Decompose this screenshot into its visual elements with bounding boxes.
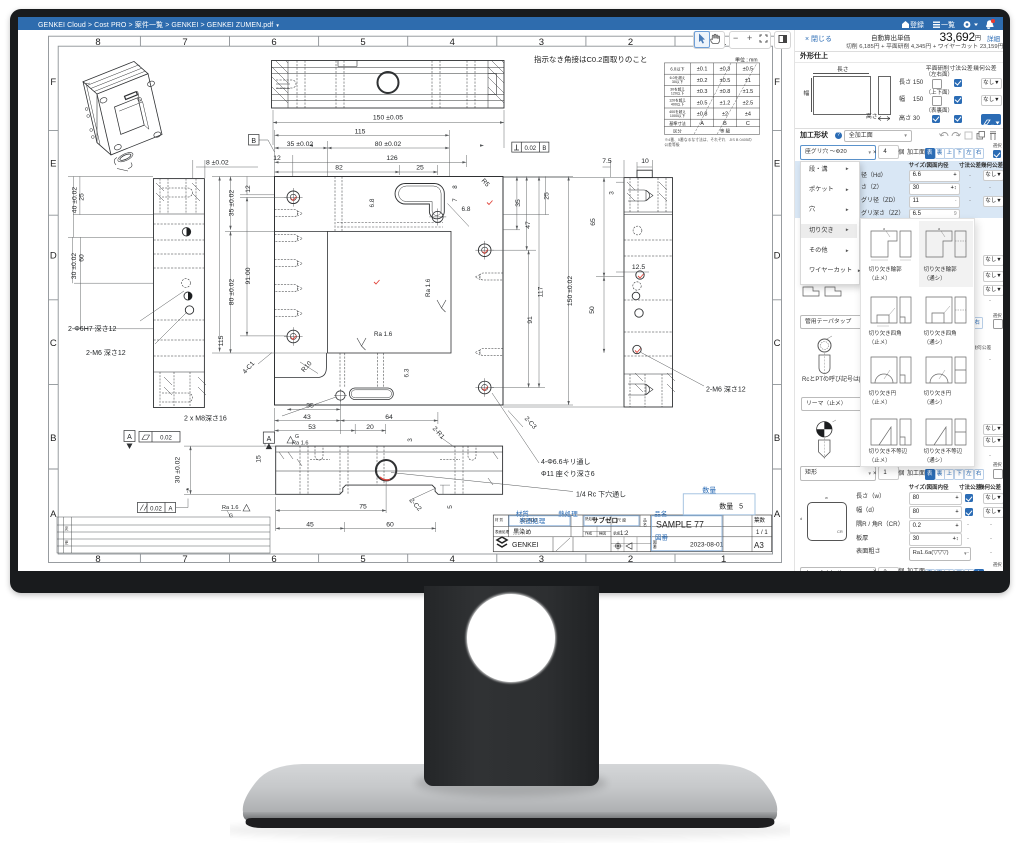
svg-text:75: 75: [359, 504, 367, 511]
svg-text:65: 65: [590, 218, 597, 226]
svg-text:熱処理: 熱処理: [558, 509, 578, 518]
svg-text:2-M6 深さ12: 2-M6 深さ12: [86, 348, 126, 357]
svg-text:150 ±0.02: 150 ±0.02: [567, 276, 574, 306]
svg-text:D: D: [774, 251, 781, 262]
svg-text:53: 53: [308, 424, 316, 431]
svg-text:150 ±0.05: 150 ±0.05: [373, 115, 403, 122]
svg-text:80 ±0.02: 80 ±0.02: [229, 279, 236, 306]
svg-text:±0.5: ±0.5: [697, 101, 708, 107]
svg-text:25: 25: [79, 193, 86, 201]
svg-text:115: 115: [355, 129, 366, 136]
svg-text:3: 3: [407, 438, 414, 442]
svg-text:400以下: 400以下: [671, 103, 685, 107]
svg-text:35 ±0.02: 35 ±0.02: [287, 141, 314, 148]
svg-text:35 ±0.02: 35 ±0.02: [229, 190, 236, 217]
svg-text:8: 8: [95, 37, 100, 48]
svg-text:±4: ±4: [745, 112, 751, 118]
svg-text:12: 12: [273, 155, 281, 162]
svg-text:±0.5: ±0.5: [743, 67, 754, 73]
svg-text:7.5: 7.5: [602, 158, 612, 165]
svg-text:尺 度: 尺 度: [617, 517, 626, 523]
svg-text:7: 7: [182, 554, 187, 565]
svg-text:80 ±0.02: 80 ±0.02: [375, 141, 402, 148]
svg-text:12: 12: [245, 185, 252, 193]
svg-text:A: A: [700, 121, 704, 127]
svg-text:0.02: 0.02: [524, 146, 536, 152]
svg-text:6: 6: [271, 37, 276, 48]
svg-text:25: 25: [416, 165, 424, 172]
svg-text:E: E: [50, 159, 56, 170]
svg-text:120以下: 120以下: [671, 92, 685, 96]
svg-text:25: 25: [544, 192, 551, 200]
svg-text:35: 35: [515, 199, 522, 207]
svg-text:区分: 区分: [673, 128, 682, 135]
svg-text:E: E: [774, 159, 780, 170]
svg-text:B: B: [251, 138, 256, 145]
svg-text:名: 名: [643, 522, 647, 527]
svg-text:8: 8: [95, 554, 100, 565]
svg-text:品: 品: [643, 518, 647, 523]
svg-text:F: F: [774, 77, 780, 88]
svg-text:30 ±0.02: 30 ±0.02: [71, 253, 78, 280]
svg-text:数量: 数量: [702, 486, 716, 495]
svg-text:6.8: 6.8: [462, 206, 471, 213]
svg-text:a: a: [883, 227, 885, 231]
svg-text:※4番、5番なるな寸法は、それぞれ JIS B 0405の: ※4番、5番なるな寸法は、それぞれ JIS B 0405の: [664, 137, 752, 142]
svg-text:4: 4: [450, 554, 455, 565]
svg-text:黒染め: 黒染め: [513, 528, 532, 536]
svg-text:材 質: 材 質: [495, 517, 503, 522]
svg-text:B: B: [774, 433, 780, 444]
svg-text:±0.1: ±0.1: [697, 67, 708, 73]
svg-text:±0.2: ±0.2: [697, 78, 708, 84]
svg-text:±2: ±2: [722, 112, 728, 118]
svg-text:91.00: 91.00: [245, 267, 252, 284]
svg-text:5: 5: [360, 554, 365, 565]
svg-text:1: 1: [721, 554, 726, 565]
svg-text:Ra 1.6: Ra 1.6: [292, 441, 308, 447]
svg-text:数量 5: 数量 5: [719, 502, 743, 511]
svg-text:12.5: 12.5: [632, 264, 645, 271]
svg-text:単位 : mm: 単位 : mm: [735, 57, 758, 64]
svg-text:検図: 検図: [599, 531, 607, 536]
svg-text:7: 7: [182, 37, 187, 48]
svg-text:126: 126: [386, 155, 398, 162]
svg-text:表面処理: 表面処理: [519, 516, 546, 525]
svg-text:7: 7: [452, 198, 459, 202]
svg-text:A3: A3: [754, 541, 764, 550]
svg-text:GENKEI: GENKEI: [512, 542, 539, 549]
svg-text:43: 43: [303, 414, 311, 421]
svg-text:変: 変: [65, 525, 69, 531]
svg-text:±0.8: ±0.8: [697, 112, 708, 118]
svg-text:±0.3: ±0.3: [720, 67, 731, 73]
svg-text:6.8: 6.8: [369, 198, 376, 207]
svg-text:60: 60: [79, 254, 86, 262]
svg-text:1:2: 1:2: [620, 531, 629, 537]
svg-text:3: 3: [609, 191, 616, 195]
svg-text:C: C: [746, 121, 750, 127]
svg-text:a: a: [938, 227, 940, 231]
svg-text:0.02: 0.02: [160, 436, 172, 442]
svg-text:SAMPLE 77: SAMPLE 77: [656, 520, 704, 530]
svg-text:番: 番: [653, 544, 657, 549]
svg-text:1000以下: 1000以下: [670, 114, 686, 118]
svg-text:表面処理: 表面処理: [495, 529, 509, 534]
svg-text:47: 47: [525, 221, 532, 229]
svg-text:±1: ±1: [745, 78, 751, 84]
svg-text:C: C: [50, 338, 57, 349]
svg-text:A: A: [774, 509, 781, 520]
svg-text:±0.5: ±0.5: [720, 78, 731, 84]
svg-text:20: 20: [366, 424, 374, 431]
svg-text:C: C: [774, 338, 781, 349]
svg-text:30 ±0.02: 30 ±0.02: [175, 457, 182, 484]
svg-text:117: 117: [538, 286, 545, 297]
svg-text:6: 6: [271, 554, 276, 565]
svg-text:1/4 Rc 下穴通し: 1/4 Rc 下穴通し: [576, 490, 626, 499]
svg-text:作成: 作成: [585, 531, 593, 536]
svg-text:40 ±0.02: 40 ±0.02: [72, 187, 79, 214]
svg-text:指示なき角接はC0.2面取りのこと: 指示なき角接はC0.2面取りのこと: [534, 54, 647, 64]
svg-text:材質: 材質: [516, 509, 530, 518]
svg-text:60: 60: [386, 522, 394, 529]
svg-text:2: 2: [628, 37, 633, 48]
svg-text:A: A: [50, 509, 57, 520]
svg-text:82: 82: [335, 165, 343, 172]
svg-text:±2.5: ±2.5: [743, 101, 754, 107]
svg-text:A: A: [127, 434, 132, 441]
svg-text:45: 45: [306, 522, 314, 529]
svg-text:公差等級: 公差等級: [664, 142, 679, 147]
svg-text:図番: 図番: [655, 534, 669, 542]
svg-text:±0.8: ±0.8: [720, 89, 731, 95]
svg-text:115: 115: [218, 335, 225, 346]
svg-text:B: B: [542, 146, 546, 152]
svg-text:Φ11 座ぐり深さ6: Φ11 座ぐり深さ6: [541, 469, 595, 478]
svg-text:A: A: [168, 506, 172, 512]
svg-text:2023-08-01: 2023-08-01: [690, 542, 724, 549]
svg-text:2 x M8深さ16: 2 x M8深さ16: [184, 414, 227, 423]
svg-text:±1.5: ±1.5: [743, 89, 754, 95]
svg-text:8 ±0.02: 8 ±0.02: [206, 160, 229, 167]
svg-text:Ra 1.6: Ra 1.6: [222, 505, 238, 511]
svg-text:8: 8: [452, 185, 459, 189]
svg-text:6.3: 6.3: [404, 368, 411, 377]
svg-text:B: B: [50, 433, 56, 444]
svg-text:G: G: [295, 434, 299, 440]
svg-text:サブゼロ: サブゼロ: [592, 516, 618, 525]
svg-text:91: 91: [527, 316, 534, 324]
svg-text:3: 3: [539, 37, 544, 48]
svg-text:15: 15: [256, 455, 263, 463]
svg-text:4-Φ6.6キリ通し: 4-Φ6.6キリ通し: [541, 457, 591, 466]
svg-text:4: 4: [450, 37, 455, 48]
svg-text:3: 3: [539, 554, 544, 565]
svg-text:2: 2: [628, 554, 633, 565]
svg-text:品名: 品名: [654, 509, 667, 518]
svg-text:A: A: [267, 436, 272, 443]
svg-text:±1.2: ±1.2: [720, 101, 731, 107]
svg-text:2-Φ6H7 深さ12: 2-Φ6H7 深さ12: [68, 324, 116, 333]
svg-text:F: F: [50, 77, 56, 88]
svg-text:Ra 1.6: Ra 1.6: [425, 278, 432, 297]
svg-text:D: D: [50, 251, 57, 262]
svg-text:2-M6 深さ12: 2-M6 深さ12: [706, 385, 746, 394]
svg-text:...: ...: [991, 121, 994, 126]
svg-text:葉数: 葉数: [754, 516, 766, 524]
svg-text:30以下: 30以下: [672, 80, 684, 84]
svg-text:G: G: [229, 514, 233, 520]
svg-text:Ra 1.6: Ra 1.6: [374, 331, 393, 338]
svg-text:10: 10: [641, 158, 649, 165]
svg-text:等 級: 等 級: [720, 128, 731, 135]
svg-text:5: 5: [360, 37, 365, 48]
svg-text:基準寸法: 基準寸法: [669, 120, 686, 127]
svg-text:更: 更: [65, 540, 69, 545]
svg-text:64: 64: [385, 414, 393, 421]
svg-text:±0.3: ±0.3: [697, 89, 708, 95]
svg-text:B: B: [723, 121, 727, 127]
svg-text:1 / 1: 1 / 1: [756, 530, 768, 536]
svg-text:0.02: 0.02: [150, 506, 162, 512]
svg-text:5: 5: [447, 505, 454, 509]
svg-text:50: 50: [589, 306, 596, 314]
